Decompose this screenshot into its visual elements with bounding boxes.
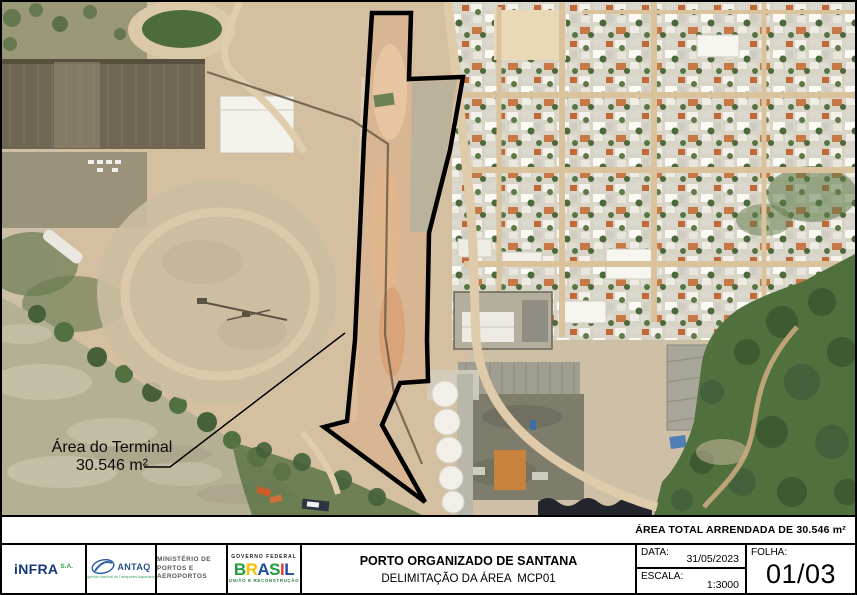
scale-value: 1:3000 xyxy=(707,579,739,591)
scale-label: ESCALA: xyxy=(641,571,683,582)
ministerio-logo: MINISTÉRIO DE PORTOS E AEROPORTOS xyxy=(157,556,226,582)
antaq-logo-subtitle: Agência Nacional de Transportes Aquaviár… xyxy=(87,575,156,579)
terminal-area-label-line1: Área do Terminal xyxy=(26,439,198,457)
drawing-subtitle: DELIMITAÇÃO DA ÁREA MCP01 xyxy=(381,573,555,585)
antaq-logo-text: ANTAQ xyxy=(117,562,150,572)
sheet-number-cell: FOLHA: 01/03 xyxy=(747,545,855,593)
drawing-title: PORTO ORGANIZADO DE SANTANA xyxy=(360,554,578,568)
ministerio-line1: MINISTÉRIO DE xyxy=(157,556,226,565)
drawing-sheet: Área do Terminal 30.546 m² ÁREA TOTAL AR… xyxy=(0,0,857,595)
title-block: iNFRA S.A. ANTAQ Agência Nacional de Tra… xyxy=(2,543,855,593)
sheet-number-label: FOLHA: xyxy=(751,547,787,558)
antaq-swoosh-icon xyxy=(91,559,115,574)
satellite-map: Área do Terminal 30.546 m² xyxy=(2,2,855,515)
brasil-logo-text: BRASIL xyxy=(234,561,294,578)
terminal-area-label-line2: 30.546 m² xyxy=(26,457,198,475)
date-label: DATA: xyxy=(641,547,669,558)
ministerio-line2: PORTOS E AEROPORTOS xyxy=(157,565,226,583)
infra-logo-suffix: S.A. xyxy=(60,563,73,570)
governo-federal-logo: GOVERNO FEDERAL BRASIL UNIÃO E RECONSTRU… xyxy=(229,555,300,584)
infra-logo-cell: iNFRA S.A. xyxy=(2,545,87,593)
infra-logo: iNFRA S.A. xyxy=(14,561,73,577)
sheet-number-value: 01/03 xyxy=(747,559,855,590)
area-total-note-row: ÁREA TOTAL ARRENDADA DE 30.546 m² xyxy=(2,515,855,543)
scale-row: ESCALA: 1:3000 xyxy=(637,569,745,593)
area-total-note: ÁREA TOTAL ARRENDADA DE 30.546 m² xyxy=(635,524,846,536)
governo-bottom-text: UNIÃO E RECONSTRUÇÃO xyxy=(229,579,300,584)
antaq-logo-cell: ANTAQ Agência Nacional de Transportes Aq… xyxy=(87,545,157,593)
antaq-logo: ANTAQ Agência Nacional de Transportes Aq… xyxy=(87,559,156,579)
ministerio-logo-cell: MINISTÉRIO DE PORTOS E AEROPORTOS xyxy=(157,545,228,593)
infra-logo-text: iNFRA xyxy=(14,561,58,577)
drawing-title-cell: PORTO ORGANIZADO DE SANTANA DELIMITAÇÃO … xyxy=(302,545,637,593)
date-scale-cell: DATA: 31/05/2023 ESCALA: 1:3000 xyxy=(637,545,747,593)
terminal-area-label: Área do Terminal 30.546 m² xyxy=(26,439,198,474)
date-value: 31/05/2023 xyxy=(686,553,739,565)
governo-logo-cell: GOVERNO FEDERAL BRASIL UNIÃO E RECONSTRU… xyxy=(228,545,302,593)
date-row: DATA: 31/05/2023 xyxy=(637,545,745,569)
